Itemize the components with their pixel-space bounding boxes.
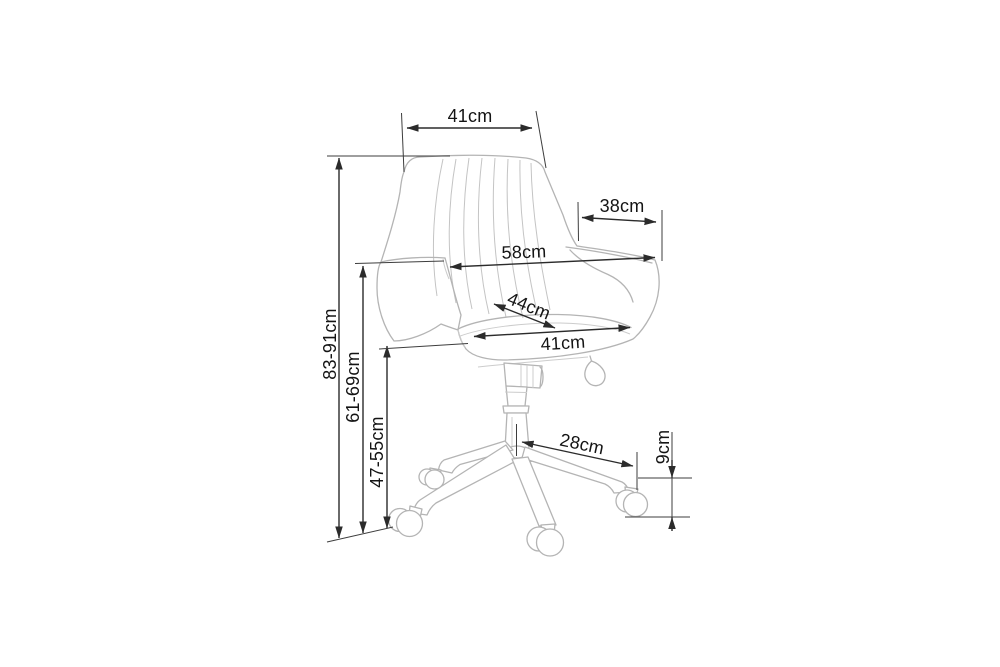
chair-line-drawing: [0, 0, 1000, 667]
dim-label-backrest-top-width: 41cm: [448, 107, 493, 125]
floor-reference-line: [327, 527, 393, 542]
dim-label-seat-height: 47-55cm: [368, 416, 386, 487]
chair-base-star: [409, 441, 638, 535]
dimension-diagram: 41cm 38cm 58cm 44cm 41cm 28cm 9cm 83-91c…: [0, 0, 1000, 667]
dim-label-overall-width: 58cm: [501, 242, 546, 262]
chair-tilt-mechanism: [504, 356, 605, 388]
dim-label-armrest-depth: 38cm: [600, 197, 645, 215]
dim-label-caster-height: 9cm: [654, 430, 672, 465]
dim-label-overall-height: 83-91cm: [321, 308, 339, 379]
dim-label-seat-width: 41cm: [540, 333, 586, 354]
dim-label-armrest-height: 61-69cm: [344, 351, 362, 422]
